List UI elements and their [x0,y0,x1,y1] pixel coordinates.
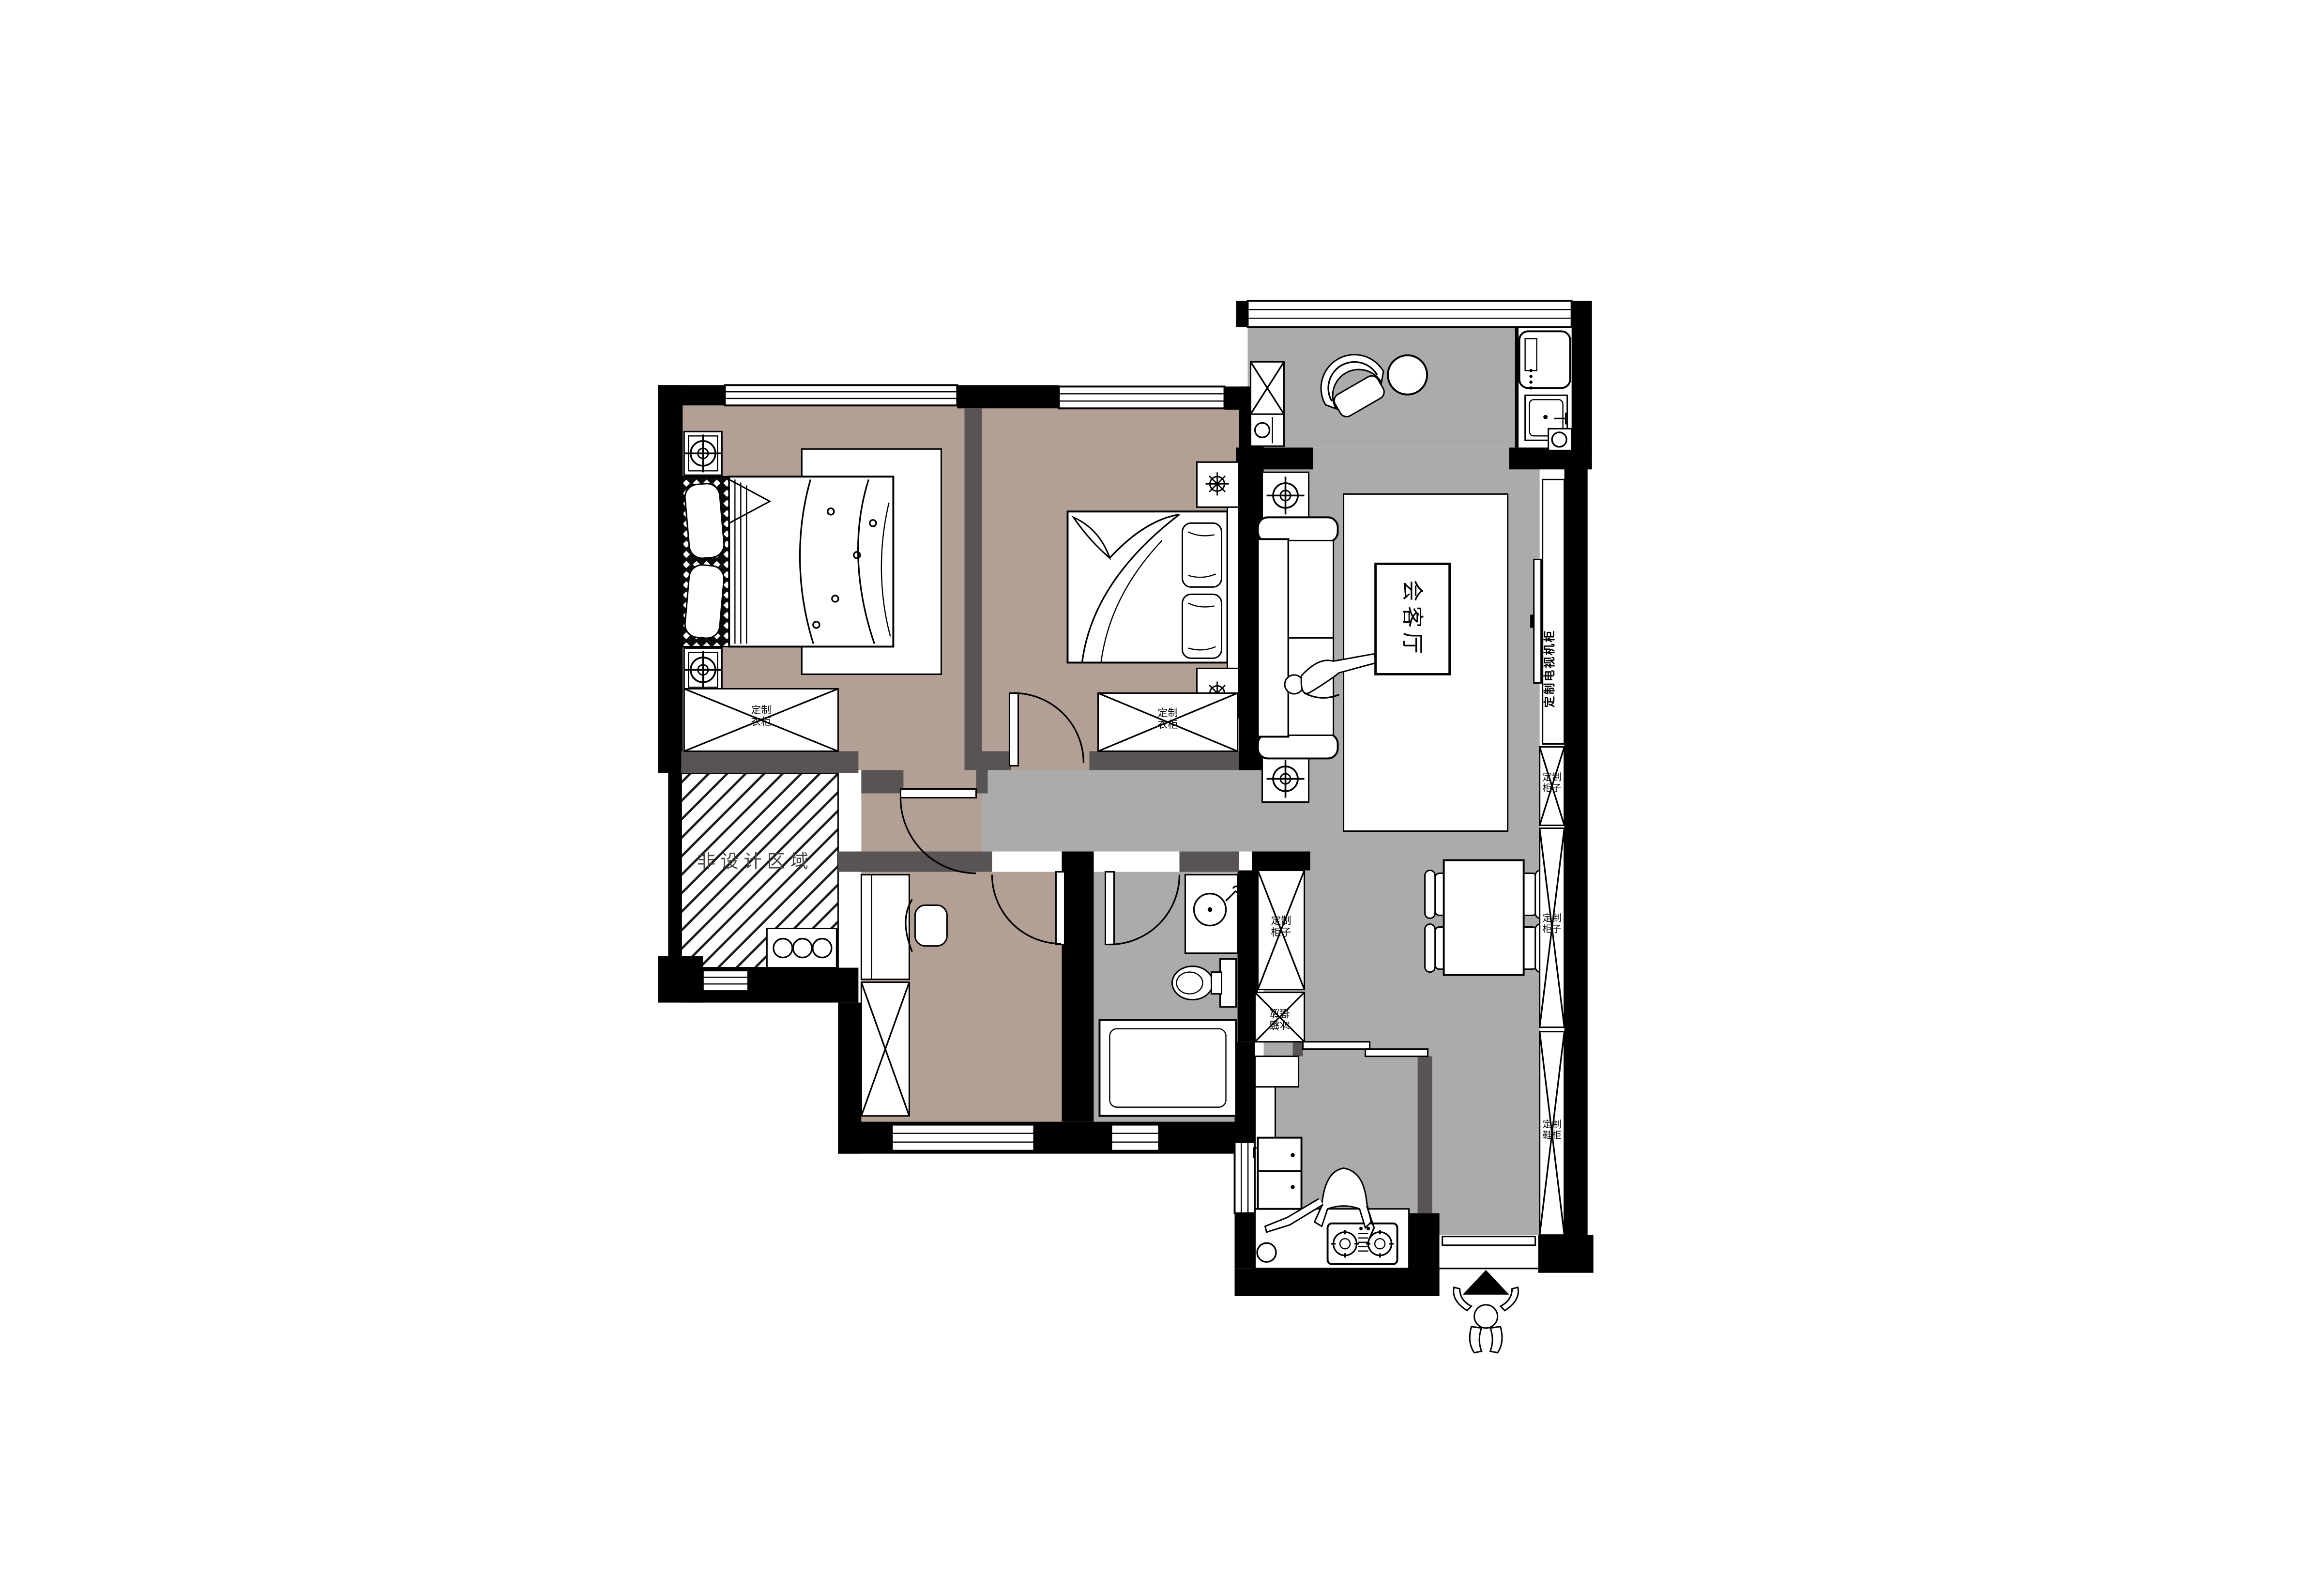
entry [1440,1235,1538,1353]
dining-cabinet: 定制柜子 [1258,871,1305,990]
living-room-label: 会客厅 [1400,580,1425,658]
bathroom-window [1111,1125,1159,1151]
desk [861,875,909,980]
hallway-floor [982,770,1263,851]
divider-cabinets: 定制柜子 冰箱摆放 [1255,871,1305,1042]
bedroom2-window [1059,386,1224,408]
side-table [1262,472,1309,519]
master-bed [683,476,893,646]
hall-cabinet-lower-label: 定制柜子 [1543,913,1562,935]
entrance-arrow-icon [1463,1270,1509,1295]
balcony-window-band [1248,301,1572,327]
utility-window [703,971,748,991]
hall-cabinet-lower: 定制柜子 [1540,828,1565,1027]
tv [1534,559,1541,683]
page-canvas: 非设计区域 [0,0,2324,1578]
person-entering [1454,1287,1519,1353]
balcony-cabinet [1251,362,1284,446]
hall-cabinet-upper: 定制柜子 [1540,747,1565,825]
bedroom2-wardrobe-cabinet: 定制衣柜 [1098,693,1237,751]
floor-drain [1549,429,1572,450]
shoe-cabinet-label: 定制鞋柜 [1543,1119,1562,1141]
kitchen-shelf [1255,1057,1299,1087]
shoe-cabinet: 定制鞋柜 [1540,1032,1565,1235]
floor-plan: 非设计区域 [0,0,2324,1578]
bathtub [1099,1020,1236,1116]
study-window [892,1125,1034,1151]
kitchen-window [1235,1142,1255,1213]
entry-door-slab [1443,1237,1535,1245]
bedroom2-wardrobe-label: 定制衣柜 [1158,707,1178,730]
refrigerator [1254,1138,1302,1209]
dining-table [1444,860,1524,975]
non-design-area-label: 非设计区域 [697,851,813,872]
nightstand [684,648,722,691]
nightstand [684,431,722,475]
dining-cabinet-label: 定制柜子 [1271,916,1291,938]
sofa [1258,517,1338,758]
hall-cabinet-upper-label: 定制柜子 [1543,772,1562,793]
fridge-space-label: 冰箱摆放 [1270,1007,1290,1030]
master-window [725,385,957,405]
hall-cabinet-strip: 定制柜子 定制柜子 定制鞋柜 [1540,747,1565,1235]
nightstand [1197,462,1239,507]
study-wardrobe-cabinet [861,982,909,1116]
gas-stove [1328,1224,1397,1264]
wash-basin [1185,875,1239,953]
side-table [1262,755,1309,802]
washing-machine [1519,331,1570,389]
non-design-area: 非设计区域 [681,773,838,967]
living-room-label-box: 会客厅 [1376,564,1450,674]
master-wardrobe-cabinet: 定制衣柜 [684,689,838,751]
master-wardrobe-label: 定制衣柜 [751,705,771,727]
round-table [1388,355,1427,395]
fridge-space-cabinet: 冰箱摆放 [1255,993,1305,1042]
tv-cabinet-label: 定制电视机柜 [1543,629,1556,707]
bedroom2-bed [1067,506,1239,668]
old-cooktop [767,929,836,968]
